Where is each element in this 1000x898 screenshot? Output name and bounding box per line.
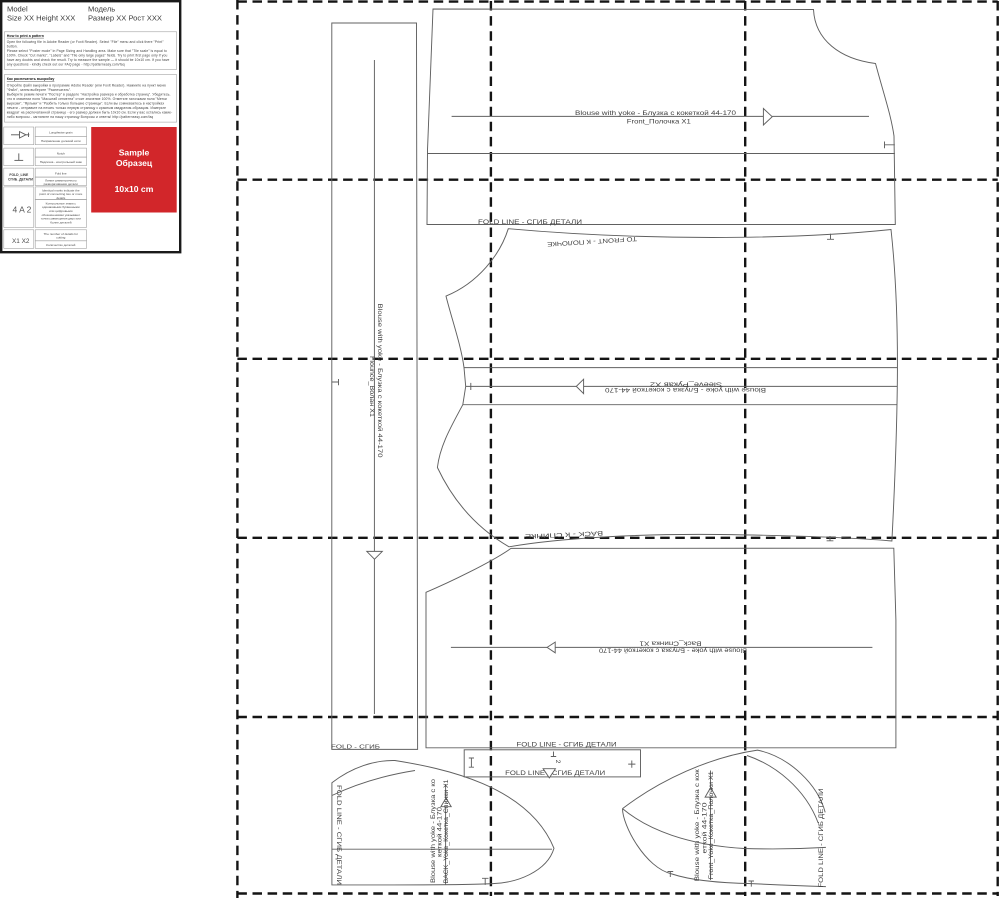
svg-text:Front_Полочка X1: Front_Полочка X1 — [627, 119, 692, 126]
svg-text:Fold line: Fold line — [55, 171, 67, 175]
svg-text:Количество деталей: Количество деталей — [46, 243, 76, 247]
svg-text:FOLD LINE - СГИБ ДЕТАЛИ: FOLD LINE - СГИБ ДЕТАЛИ — [478, 220, 582, 226]
svg-text:кеткой 44-170: кеткой 44-170 — [437, 806, 444, 857]
svg-text:FOLD LINE - СГИБ ДЕТАЛИ: FOLD LINE - СГИБ ДЕТАЛИ — [335, 785, 341, 885]
svg-text:FOLD LINE - СГИБ ДЕТАЛИ: FOLD LINE - СГИБ ДЕТАЛИ — [517, 743, 617, 749]
svg-text:FOLD LINE - СГИБ ДЕТАЛИ: FOLD LINE - СГИБ ДЕТАЛИ — [505, 771, 605, 777]
svg-text:BACK_Yoke_Кокетка_Спинки X1: BACK_Yoke_Кокетка_Спинки X1 — [444, 779, 450, 884]
svg-text:что в значении поля "Масштаб с: что в значении поля "Масштаб сегмента" с… — [7, 97, 167, 101]
svg-text:СГИБ_ДЕТАЛИ: СГИБ_ДЕТАЛИ — [8, 177, 34, 181]
svg-text:details: details — [56, 196, 65, 200]
svg-text:Откройте файл выкройки в прогр: Откройте файл выкройки в программе Adobe… — [7, 84, 167, 88]
svg-text:Модель: Модель — [88, 5, 115, 14]
svg-text:либо вопросы - загляните на на: либо вопросы - загляните на нашу страниц… — [7, 115, 154, 119]
svg-text:100%. Check "Cut marks", "Labe: 100%. Check "Cut marks", "Labels" and "T… — [7, 54, 168, 58]
svg-text:более деталей: более деталей — [50, 220, 72, 224]
svg-text:Образец: Образец — [116, 158, 153, 168]
svg-text:2: 2 — [554, 760, 561, 764]
svg-text:"Файл", затем выберите "Распеч: "Файл", затем выберите "Распечатать". — [7, 88, 71, 92]
svg-text:Blouse with yoke - Блузка с ко: Blouse with yoke - Блузка с кокеткой 44-… — [575, 109, 737, 117]
svg-text:Longthwise grain: Longthwise grain — [49, 130, 73, 134]
svg-text:Надсечка - контрольный знак: Надсечка - контрольный знак — [40, 160, 83, 164]
svg-text:квадрат на распечатанной стран: квадрат на распечатанной странице - его … — [7, 111, 173, 115]
svg-text:Notch: Notch — [57, 151, 65, 155]
svg-text:X1 X2: X1 X2 — [12, 238, 30, 245]
svg-text:FOLD LINE - СГИБ ДЕТАЛИ: FOLD LINE - СГИБ ДЕТАЛИ — [819, 789, 825, 888]
svg-text:Sleeve_Рукав X2: Sleeve_Рукав X2 — [649, 380, 722, 387]
svg-text:button.: button. — [7, 45, 18, 49]
svg-text:Flounce_Волан X1: Flounce_Волан X1 — [368, 356, 375, 418]
svg-text:Please select "Poster mode" in: Please select "Poster mode" in Page Sizi… — [7, 49, 167, 53]
svg-text:FOLD_LINE: FOLD_LINE — [9, 173, 29, 177]
svg-text:Open the following file in Ado: Open the following file in Adobe Reader … — [7, 40, 165, 44]
svg-text:Как распечатать выкройку: Как распечатать выкройку — [7, 77, 55, 81]
svg-text:печати - отправьте на печать т: печати - отправьте на печать только перв… — [7, 106, 166, 110]
svg-text:Blouse with yoke - Блузка с ко: Blouse with yoke - Блузка с ко — [431, 778, 437, 883]
svg-text:Front_Yoke_Кокетка_Полочки X1: Front_Yoke_Кокетка_Полочки X1 — [709, 771, 715, 880]
svg-text:Выберите режим печати "Постер": Выберите режим печати "Постер" в разделе… — [7, 93, 171, 97]
svg-text:Blouse with yoke - Блузка с ко: Blouse with yoke - Блузка с кок — [695, 769, 701, 881]
svg-text:4 A 2: 4 A 2 — [13, 205, 32, 215]
svg-text:How to print a pattern: How to print a pattern — [7, 34, 44, 38]
svg-text:any questions - kindly check o: any questions - kindly check out our FAQ… — [7, 63, 125, 67]
svg-text:Blouse with yoke - Блузка с ко: Blouse with yoke - Блузка с кокеткой 44-… — [376, 304, 383, 459]
svg-text:разворачивания детали: разворачивания детали — [44, 182, 78, 186]
svg-text:FOLD - СГИБ: FOLD - СГИБ — [331, 744, 380, 750]
svg-text:Размер XX Рост XXX: Размер XX Рост XXX — [88, 14, 162, 23]
svg-text:have any doubts and check the: have any doubts and check the result. Tr… — [7, 58, 170, 62]
svg-text:Size XX Height XXX: Size XX Height XXX — [7, 14, 75, 23]
svg-text:10x10 cm: 10x10 cm — [115, 184, 154, 194]
svg-text:Model: Model — [7, 5, 28, 14]
svg-text:Направление долевой нити: Направление долевой нити — [41, 139, 81, 143]
svg-text:cutting: cutting — [56, 236, 65, 240]
svg-text:еткой 44-170: еткой 44-170 — [701, 802, 708, 854]
svg-text:вырезки", "Ярлыки" и "Разбить: вырезки", "Ярлыки" и "Разбить только бол… — [7, 102, 165, 106]
svg-text:Sample: Sample — [119, 147, 150, 157]
svg-text:Back_Спинка X1: Back_Спинка X1 — [639, 640, 702, 647]
